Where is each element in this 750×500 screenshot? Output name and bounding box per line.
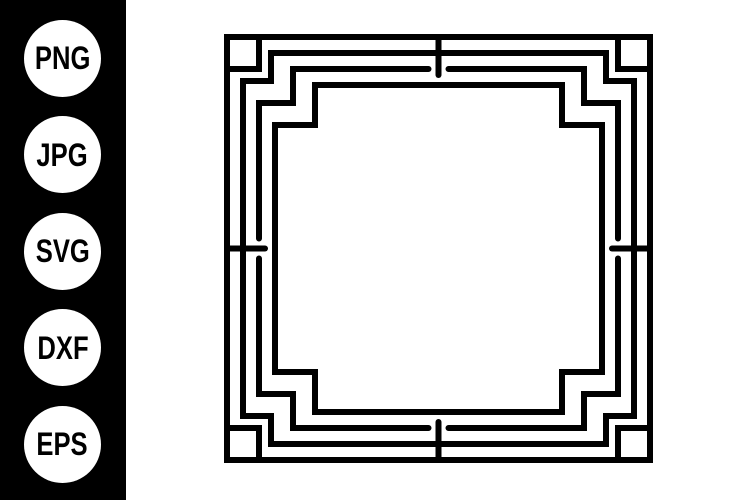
frame-corner-square-br	[618, 428, 650, 460]
preview-canvas: PNG JPG SVG DXF EPS	[0, 0, 750, 500]
frame-corner-square-tl	[227, 37, 259, 69]
format-sidebar: PNG JPG SVG DXF EPS	[0, 0, 126, 500]
frame-line-third-tl	[259, 69, 429, 239]
frame-line-second	[243, 53, 634, 444]
format-badge-dxf: DXF	[24, 309, 101, 386]
format-badge-png: PNG	[24, 20, 101, 97]
frame-line-third-br	[449, 259, 619, 429]
frame-line-inner	[275, 85, 602, 412]
format-badge-label: SVG	[35, 235, 89, 267]
frame-line-third-tr	[449, 69, 619, 239]
format-badge-label: EPS	[37, 428, 88, 460]
frame-corner-square-tr	[618, 37, 650, 69]
frame-lines	[227, 37, 650, 460]
format-badge-label: JPG	[37, 139, 88, 171]
format-badge-eps: EPS	[24, 406, 101, 483]
frame-corner-square-bl	[227, 428, 259, 460]
format-badge-jpg: JPG	[24, 116, 101, 193]
format-badge-label: PNG	[35, 42, 90, 74]
frame-line-third-bl	[259, 259, 429, 429]
format-badge-svg: SVG	[24, 213, 101, 290]
format-badge-label: DXF	[37, 332, 88, 364]
